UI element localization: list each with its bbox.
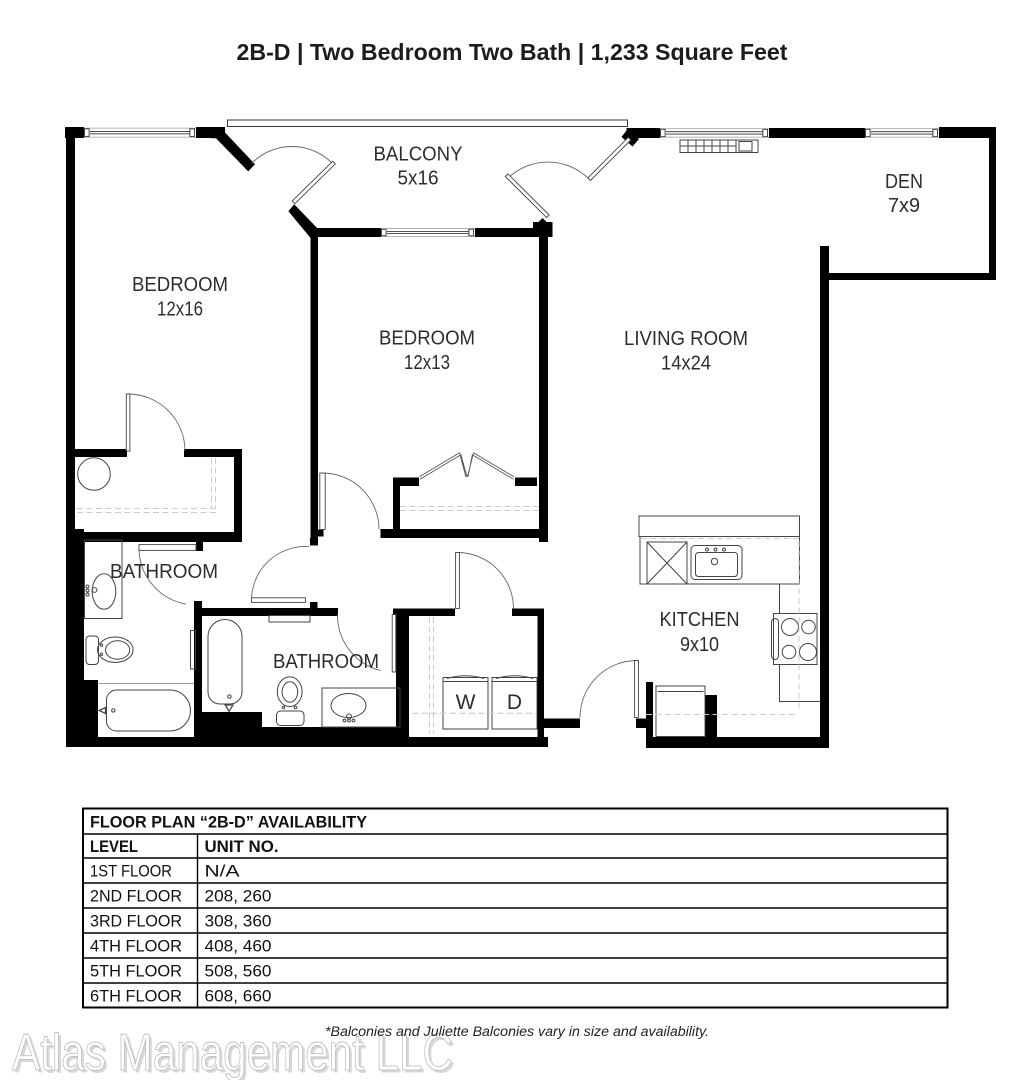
- svg-text:*Balconies and Juliette Balcon: *Balconies and Juliette Balconies vary i…: [325, 1024, 709, 1039]
- svg-text:KITCHEN: KITCHEN: [660, 609, 740, 631]
- svg-text:7x9: 7x9: [888, 195, 920, 217]
- svg-text:1ST FLOOR: 1ST FLOOR: [90, 862, 172, 881]
- svg-text:6TH FLOOR: 6TH FLOOR: [90, 987, 182, 1006]
- svg-text:LIVING ROOM: LIVING ROOM: [624, 328, 748, 350]
- svg-text:3RD FLOOR: 3RD FLOOR: [90, 912, 182, 931]
- svg-text:FLOOR PLAN “2B-D” AVAILABILITY: FLOOR PLAN “2B-D” AVAILABILITY: [90, 813, 368, 832]
- svg-text:608, 660: 608, 660: [205, 987, 272, 1006]
- svg-text:12x16: 12x16: [157, 299, 203, 321]
- svg-text:5TH FLOOR: 5TH FLOOR: [90, 962, 182, 981]
- svg-text:5x16: 5x16: [398, 168, 439, 190]
- svg-text:BATHROOM: BATHROOM: [273, 651, 379, 673]
- svg-text:BEDROOM: BEDROOM: [132, 274, 228, 296]
- svg-text:W: W: [456, 691, 476, 714]
- svg-text:D: D: [507, 691, 522, 714]
- svg-text:9x10: 9x10: [680, 634, 719, 656]
- svg-text:408, 460: 408, 460: [205, 937, 272, 956]
- svg-text:N/A: N/A: [205, 862, 241, 881]
- svg-text:14x24: 14x24: [661, 353, 711, 375]
- svg-text:BATHROOM: BATHROOM: [110, 561, 218, 583]
- svg-text:LEVEL: LEVEL: [90, 837, 138, 856]
- svg-text:4TH FLOOR: 4TH FLOOR: [90, 937, 182, 956]
- svg-text:12x13: 12x13: [404, 352, 450, 374]
- svg-text:UNIT NO.: UNIT NO.: [205, 837, 279, 856]
- svg-text:BALCONY: BALCONY: [374, 144, 463, 166]
- svg-text:BEDROOM: BEDROOM: [379, 328, 475, 350]
- svg-text:DEN: DEN: [885, 171, 923, 193]
- svg-text:308, 360: 308, 360: [205, 912, 272, 931]
- svg-text:508, 560: 508, 560: [205, 962, 272, 981]
- svg-text:2ND FLOOR: 2ND FLOOR: [90, 887, 182, 906]
- svg-text:208, 260: 208, 260: [205, 887, 272, 906]
- svg-text:2B-D | Two Bedroom Two Bath |: 2B-D | Two Bedroom Two Bath | 1,233 Squa…: [237, 39, 788, 65]
